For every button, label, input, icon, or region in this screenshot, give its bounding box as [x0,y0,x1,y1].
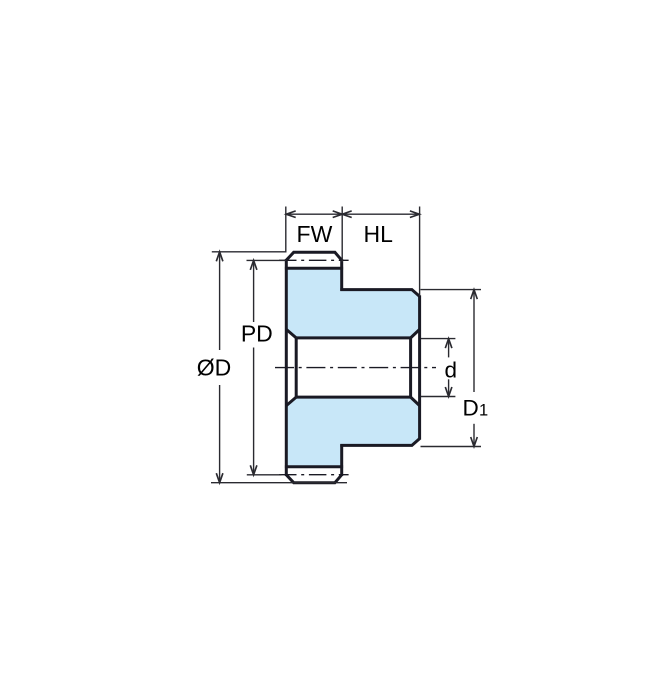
svg-text:ØD: ØD [197,355,232,381]
svg-text:FW: FW [297,221,333,247]
svg-text:D: D [463,396,479,421]
svg-text:1: 1 [479,402,488,420]
svg-text:HL: HL [363,221,393,247]
svg-text:PD: PD [241,320,273,346]
svg-text:d: d [445,357,458,382]
